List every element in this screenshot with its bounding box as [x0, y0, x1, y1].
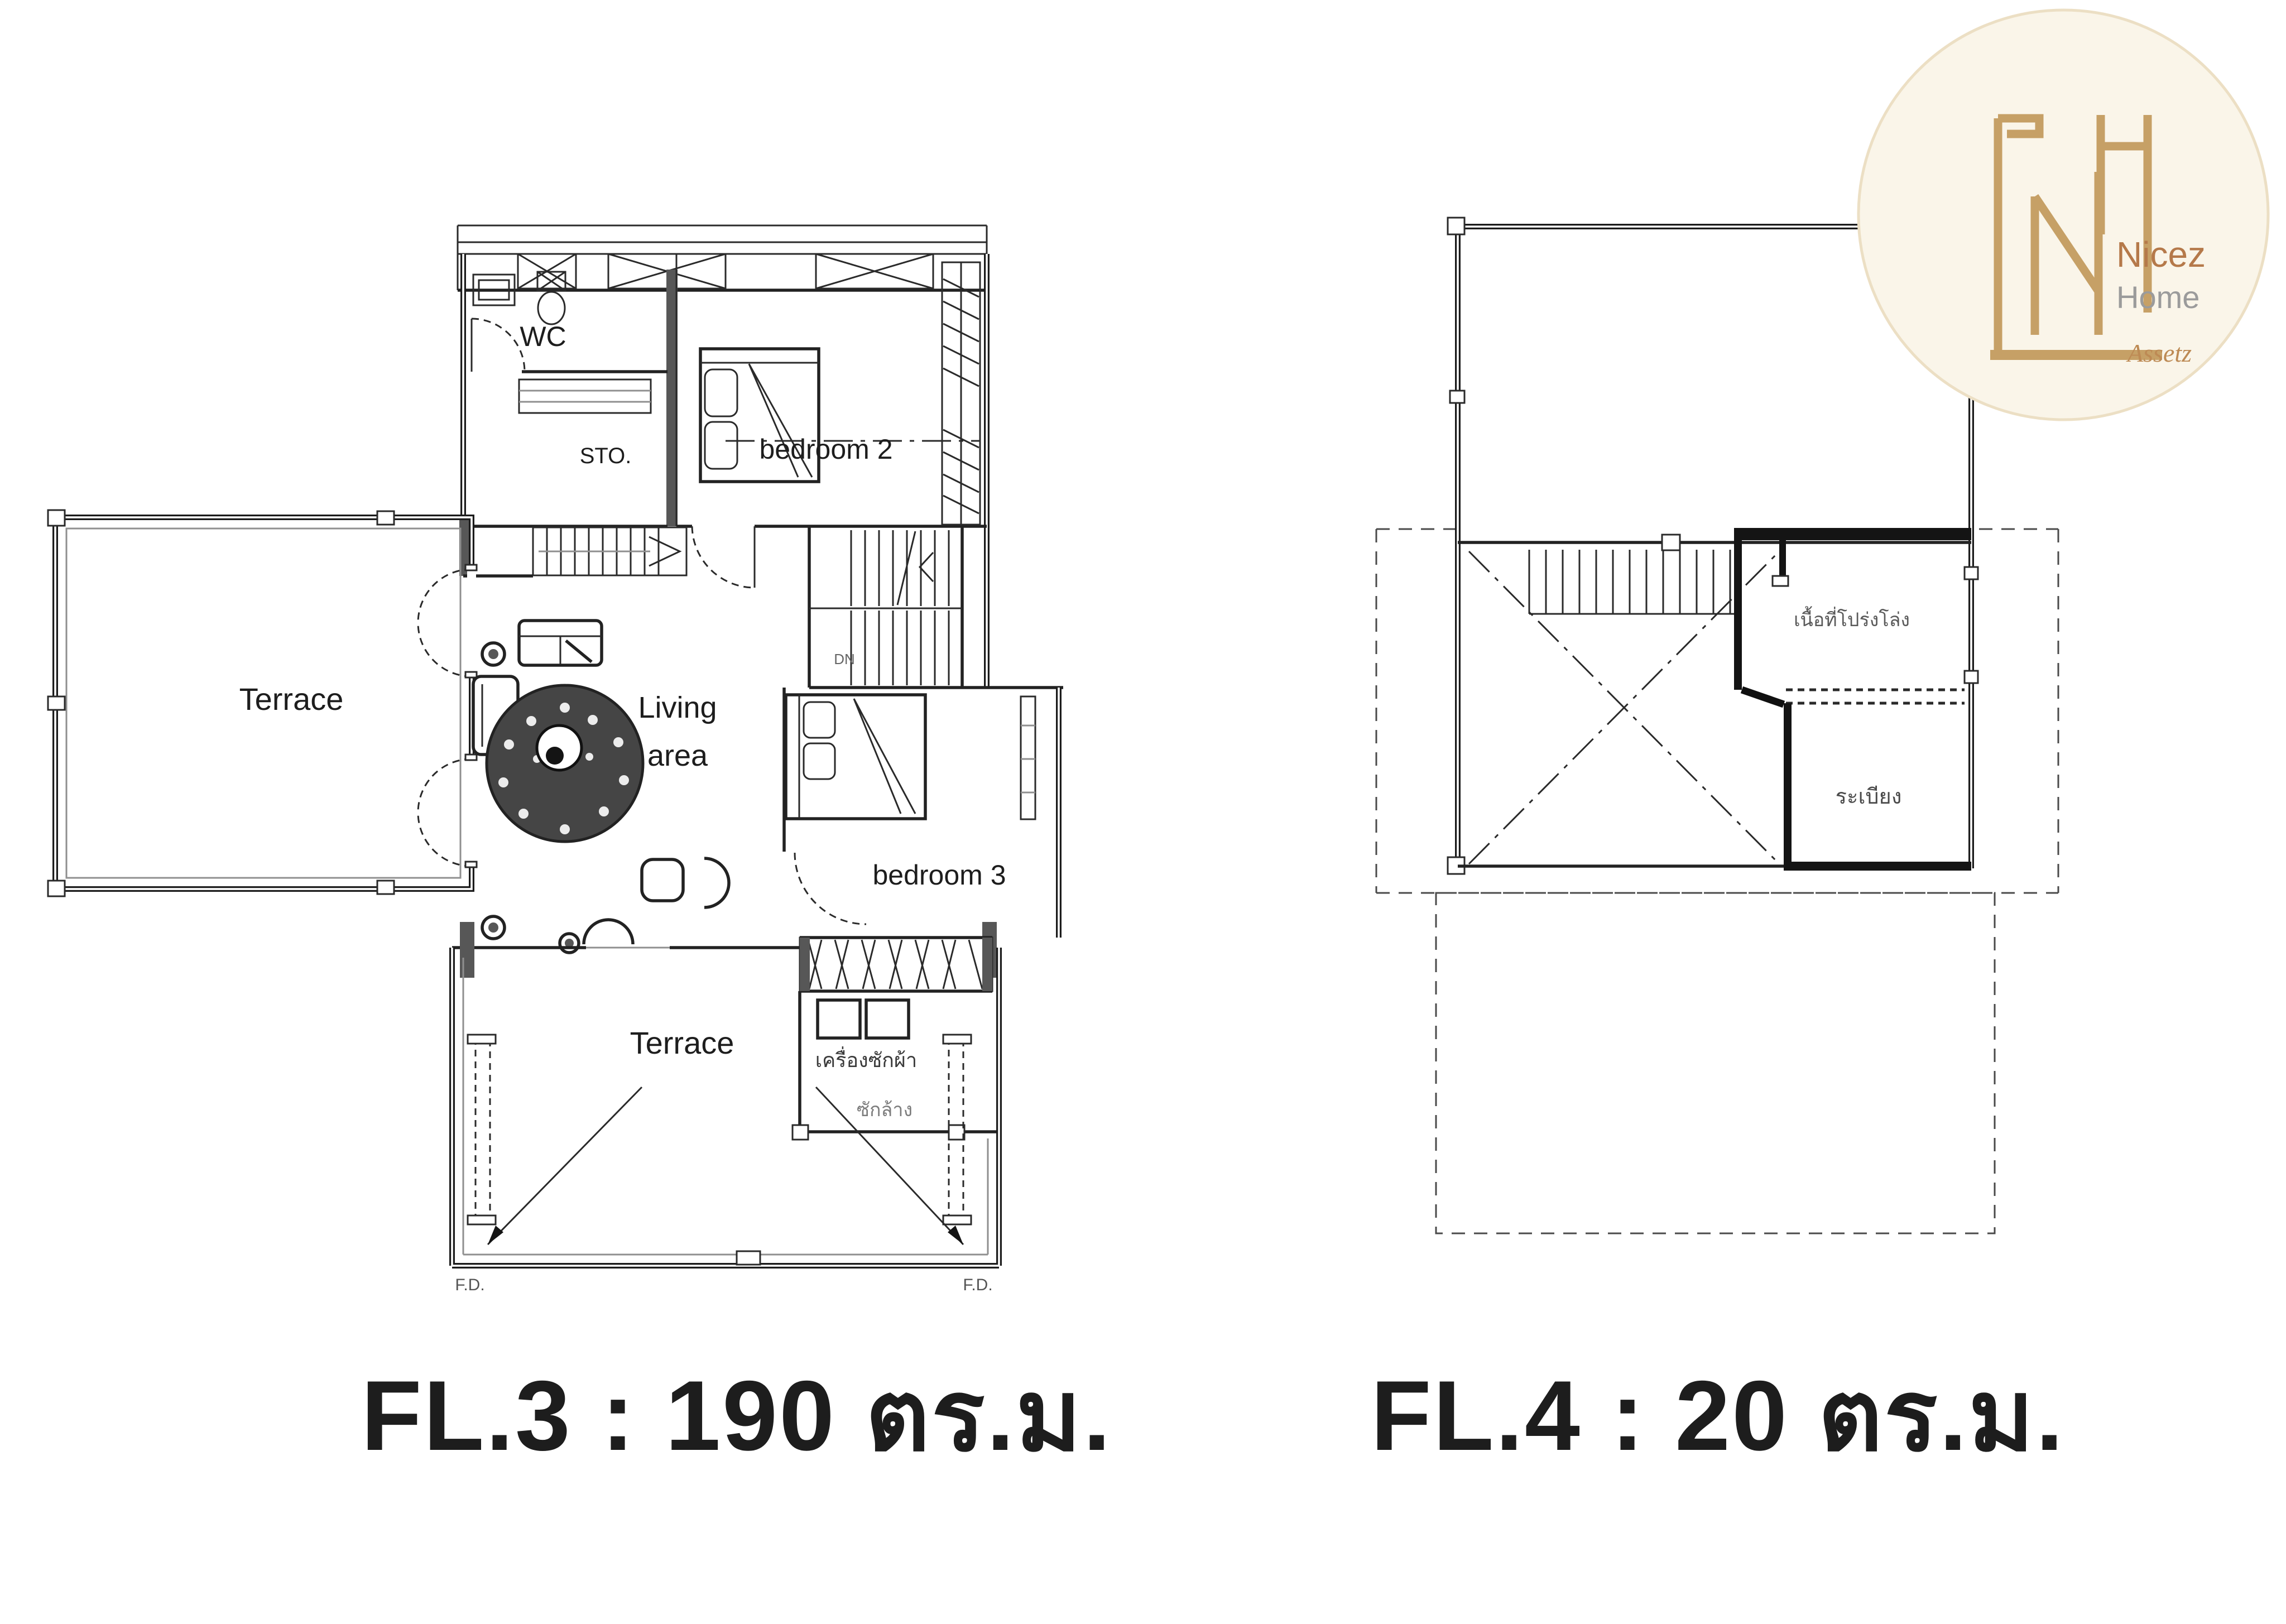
bedroom3: bedroom 3 [784, 688, 1059, 938]
fl4-middle-section: เนื้อที่โปร่งโล่ง ระเบียง [1458, 528, 1978, 871]
terrace-bottom: Terrace F.D. F.D. [452, 948, 999, 1294]
floor4-caption: FL.4 : 20 ตร.ม. [1371, 1360, 2065, 1471]
room-label-terrace-left: Terrace [239, 681, 344, 717]
stair-main: DN [809, 526, 962, 688]
room-label-open-area: เนื้อที่โปร่งโล่ง [1794, 606, 1910, 631]
logo-name: Nicez [2116, 234, 2206, 275]
sto-shelves [519, 379, 651, 413]
room-label-bedroom3: bedroom 3 [872, 859, 1006, 891]
floorplan-sheet: WC STO. bedroom 2 [0, 0, 2286, 1624]
brand-logo: Nicez Home Assetz [1858, 10, 2268, 420]
logo-suffix: Assetz [2126, 339, 2192, 367]
label-washing-machine: เครื่องซักผ้า [815, 1046, 917, 1072]
living-furniture [473, 621, 729, 953]
floor3-caption: FL.3 : 190 ตร.ม. [361, 1360, 1112, 1471]
wardrobe-bedroom2 [942, 262, 980, 525]
room-label-sto: STO. [580, 444, 632, 468]
room-label-living-1: Living [638, 691, 717, 724]
floor3-plan: WC STO. bedroom 2 [48, 225, 1063, 1294]
logo-type: Home [2116, 280, 2199, 315]
fl4-dashed-reference [1376, 529, 2058, 893]
room-label-bedroom2: bedroom 2 [759, 434, 892, 465]
stair-dn-label: DN [834, 651, 855, 667]
fl4-roof-outline-below [1436, 893, 1995, 1233]
room-label-balcony: ระเบียง [1836, 785, 1902, 809]
room-label-terrace-bottom: Terrace [630, 1025, 734, 1060]
label-fd-left: F.D. [455, 1276, 484, 1294]
room-label-wc: WC [520, 321, 566, 352]
label-fd-right: F.D. [963, 1276, 992, 1294]
label-wash-area: ซักล้าง [857, 1099, 913, 1121]
room-label-living-2: area [647, 739, 708, 772]
terrace-left: Terrace [48, 510, 477, 896]
